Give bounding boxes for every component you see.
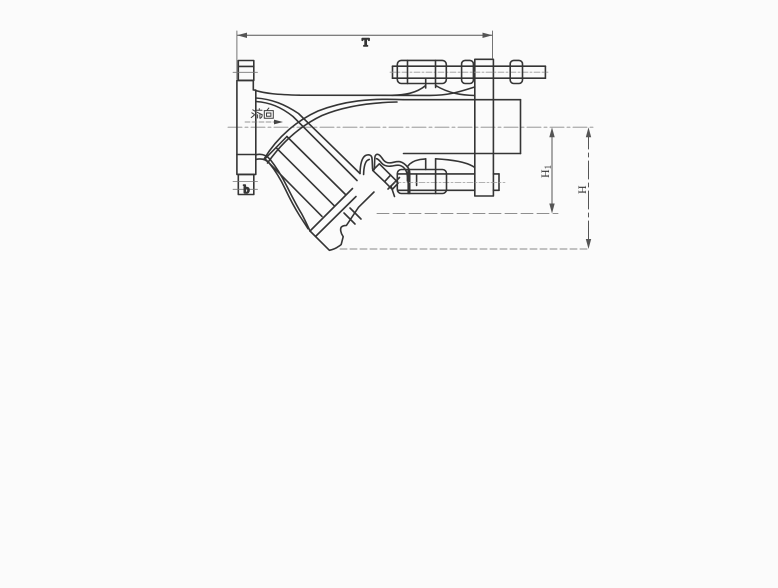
svg-text:b: b <box>244 182 250 196</box>
svg-text:H: H <box>575 185 589 194</box>
svg-text:H1: H1 <box>538 165 553 178</box>
svg-text:T: T <box>362 35 370 49</box>
